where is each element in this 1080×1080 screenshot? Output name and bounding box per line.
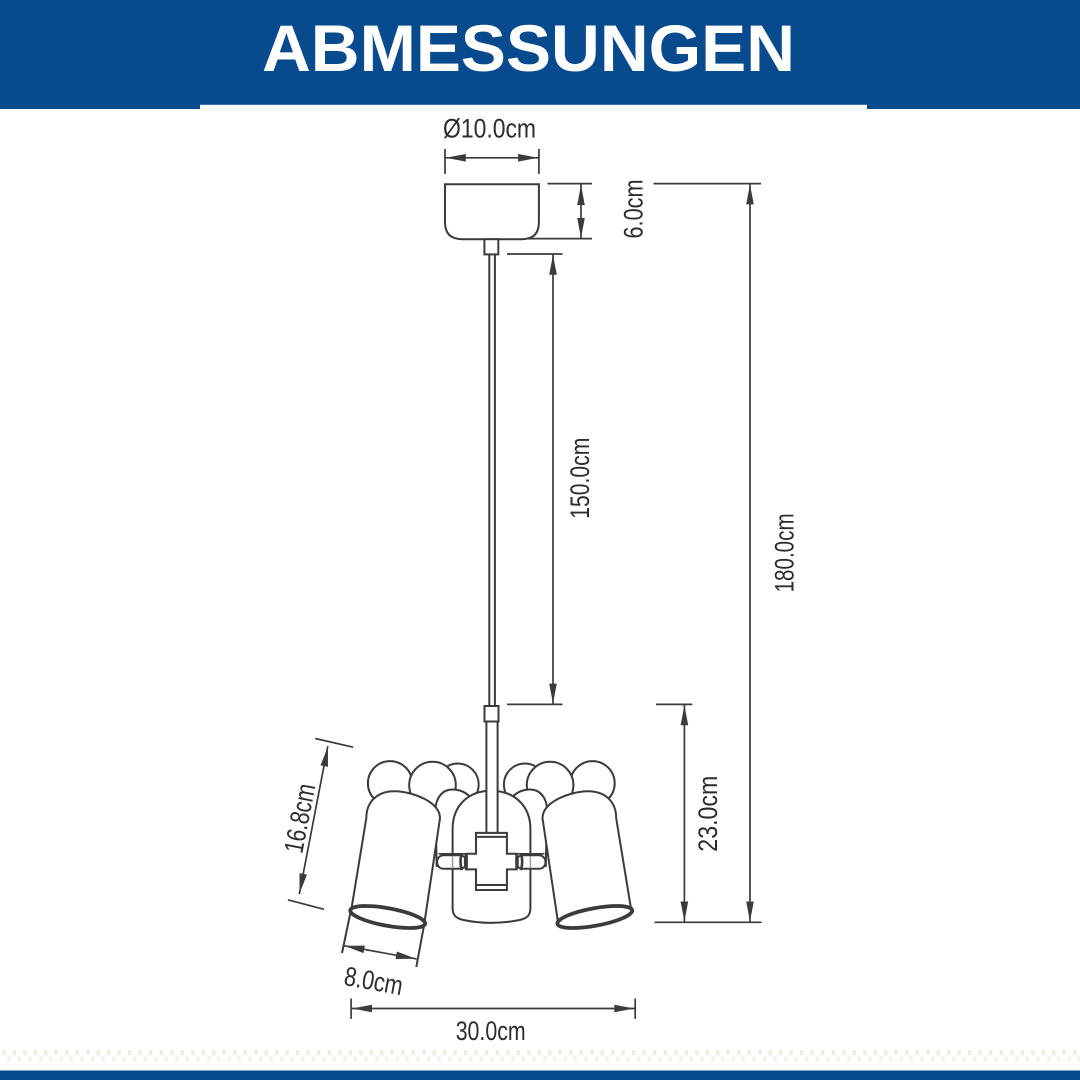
- svg-text:16.8cm: 16.8cm: [279, 781, 322, 855]
- svg-text:23.0cm: 23.0cm: [693, 776, 723, 852]
- svg-text:ABMESSUNGEN: ABMESSUNGEN: [262, 11, 795, 85]
- svg-text:6.0cm: 6.0cm: [619, 180, 649, 239]
- svg-text:180.0cm: 180.0cm: [770, 513, 800, 592]
- svg-text:8.0cm: 8.0cm: [342, 961, 405, 1001]
- svg-text:30.0cm: 30.0cm: [456, 1016, 526, 1046]
- svg-text:150.0cm: 150.0cm: [565, 438, 595, 519]
- svg-text:Ø10.0cm: Ø10.0cm: [443, 114, 536, 144]
